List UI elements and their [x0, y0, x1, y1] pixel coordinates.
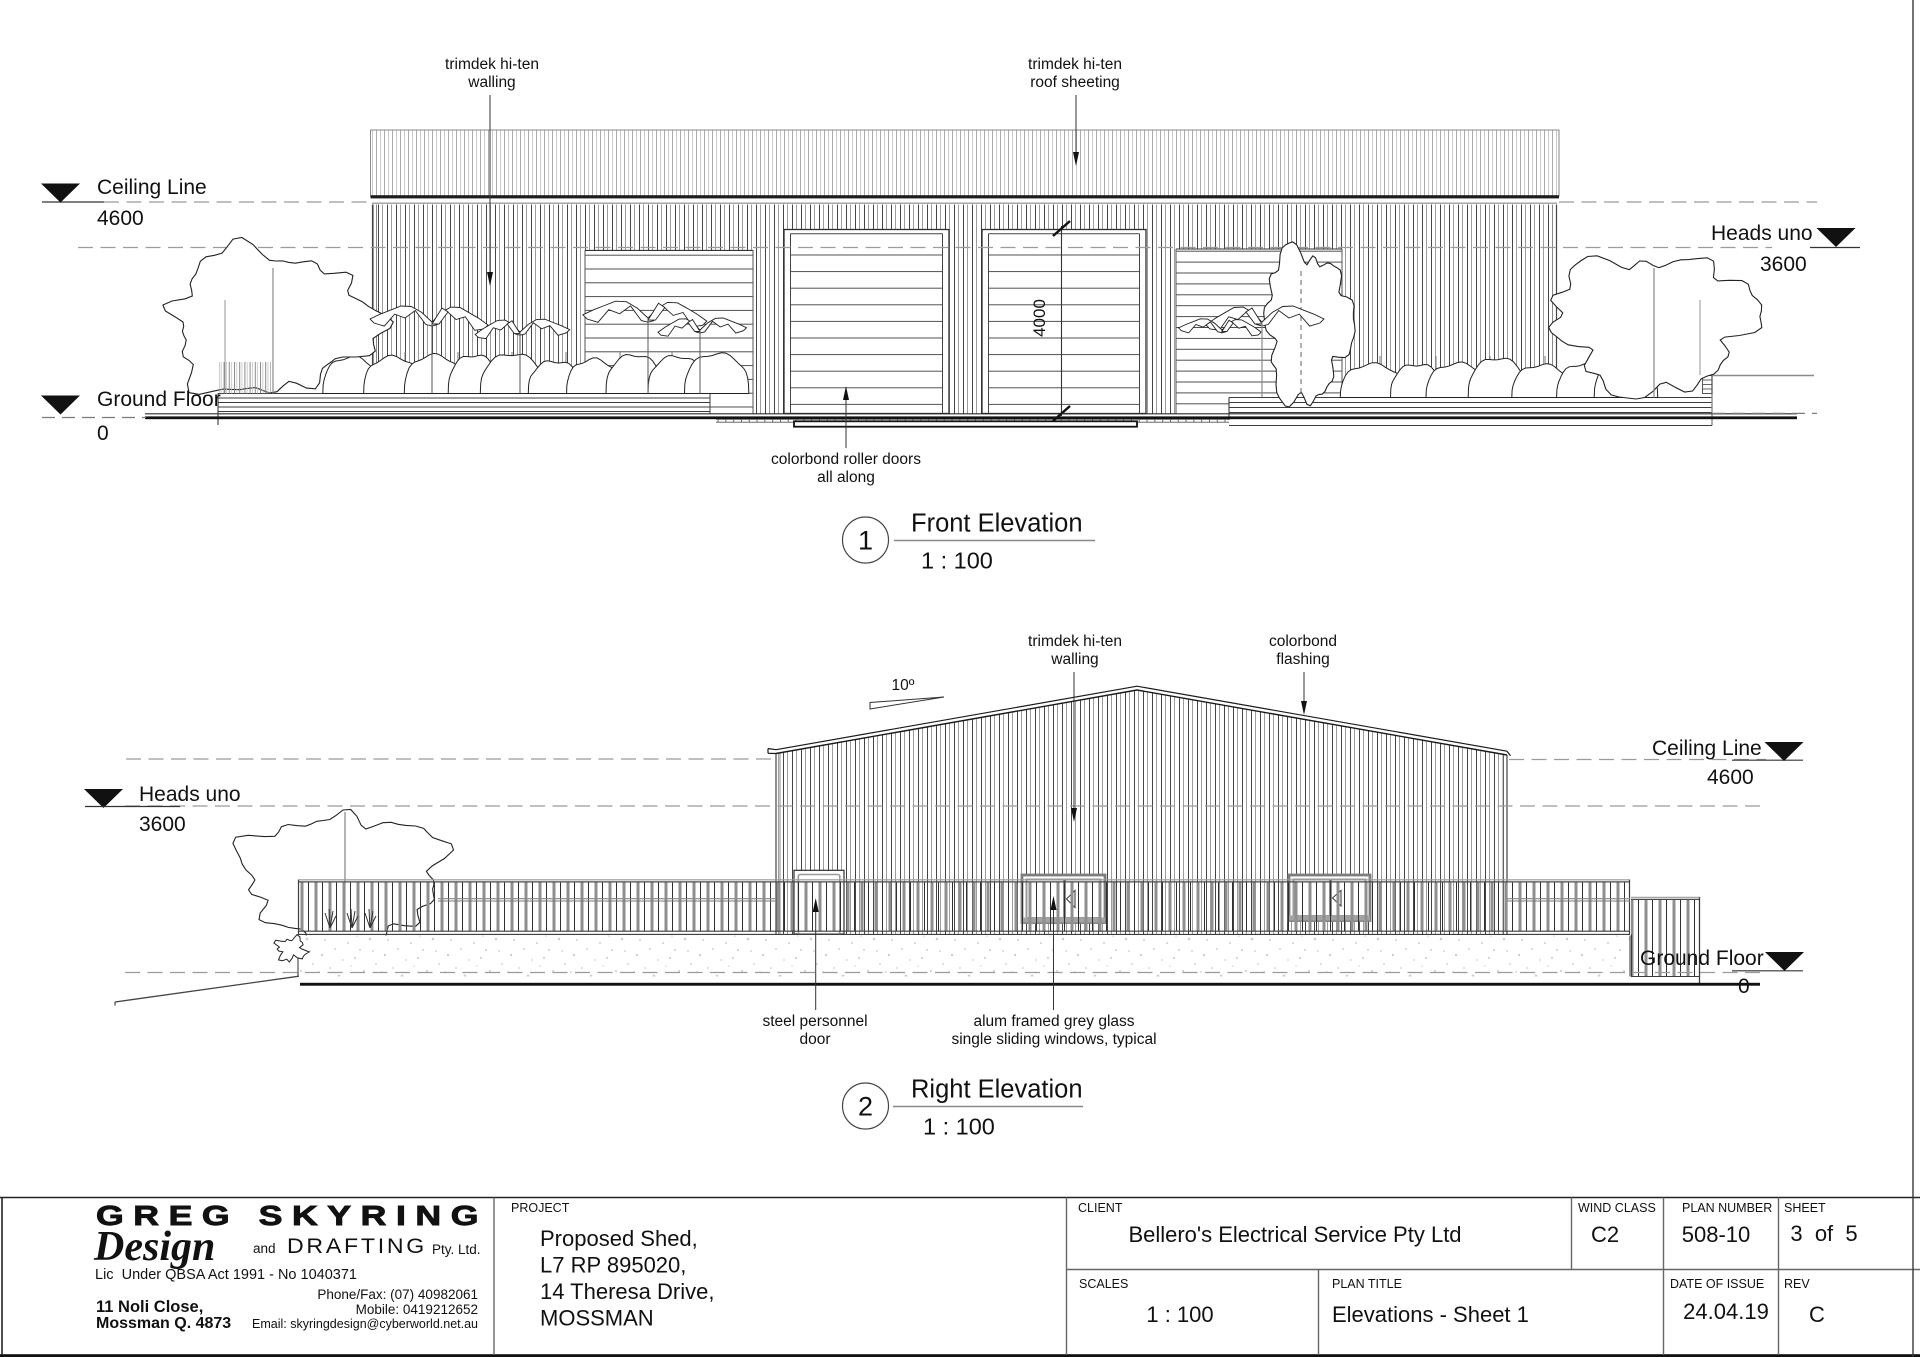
- svg-text:10º: 10º: [892, 677, 915, 694]
- svg-text:Bellero's Electrical Service P: Bellero's Electrical Service Pty Ltd: [1128, 1222, 1461, 1247]
- svg-text:Email: skyringdesign@cyberworl: Email: skyringdesign@cyberworld.net.au: [252, 1317, 478, 1331]
- svg-text:11 Noli Close,: 11 Noli Close,: [96, 1298, 203, 1316]
- svg-text:trimdek hi-ten: trimdek hi-ten: [1028, 633, 1122, 650]
- svg-text:1: 1: [858, 526, 873, 556]
- svg-text:Ground Floor: Ground Floor: [1640, 947, 1764, 970]
- svg-text:Elevations - Sheet 1: Elevations - Sheet 1: [1332, 1302, 1529, 1327]
- svg-text:trimdek hi-ten: trimdek hi-ten: [1028, 56, 1122, 73]
- svg-text:24.04.19: 24.04.19: [1683, 1299, 1769, 1324]
- svg-text:and: and: [253, 1241, 276, 1256]
- svg-text:SHEET: SHEET: [1784, 1201, 1826, 1215]
- svg-text:2: 2: [858, 1092, 873, 1122]
- svg-text:single sliding windows, typica: single sliding windows, typical: [951, 1031, 1156, 1048]
- svg-text:Heads uno: Heads uno: [1711, 222, 1813, 245]
- svg-text:WIND CLASS: WIND CLASS: [1578, 1201, 1656, 1215]
- svg-text:C2: C2: [1591, 1222, 1619, 1247]
- svg-text:4000: 4000: [1030, 299, 1049, 337]
- svg-text:3600: 3600: [139, 813, 186, 836]
- svg-text:Ground Floor: Ground Floor: [97, 388, 221, 411]
- svg-text:3 of 5: 3 of 5: [1790, 1221, 1857, 1246]
- svg-text:trimdek hi-ten: trimdek hi-ten: [445, 56, 539, 73]
- svg-text:1 : 100: 1 : 100: [923, 1114, 995, 1140]
- svg-text:1 : 100: 1 : 100: [1146, 1302, 1213, 1327]
- svg-text:Right Elevation: Right Elevation: [911, 1076, 1083, 1104]
- svg-text:0: 0: [1738, 975, 1750, 998]
- svg-text:L7 RP 895020,: L7 RP 895020,: [540, 1253, 686, 1278]
- svg-text:Pty. Ltd.: Pty. Ltd.: [432, 1242, 481, 1257]
- svg-text:Ceiling Line: Ceiling Line: [1652, 737, 1762, 760]
- svg-text:colorbond: colorbond: [1269, 633, 1337, 650]
- svg-text:508-10: 508-10: [1682, 1222, 1751, 1247]
- svg-text:Ceiling Line: Ceiling Line: [97, 176, 207, 199]
- svg-text:DRAFTING: DRAFTING: [287, 1235, 427, 1258]
- svg-text:1 : 100: 1 : 100: [921, 548, 993, 574]
- svg-text:Front Elevation: Front Elevation: [911, 510, 1083, 538]
- svg-text:alum framed grey glass: alum framed grey glass: [973, 1013, 1134, 1030]
- svg-text:PLAN TITLE: PLAN TITLE: [1332, 1277, 1402, 1291]
- svg-text:colorbond roller doors: colorbond roller doors: [771, 451, 921, 468]
- svg-text:flashing: flashing: [1276, 651, 1329, 668]
- svg-text:walling: walling: [467, 74, 515, 91]
- svg-text:4600: 4600: [1707, 766, 1754, 789]
- svg-text:PLAN NUMBER: PLAN NUMBER: [1682, 1201, 1772, 1215]
- svg-text:Heads uno: Heads uno: [139, 783, 241, 806]
- svg-text:Design: Design: [93, 1224, 215, 1270]
- svg-text:Lic Under QBSA Act 1991 - No: Lic Under QBSA Act 1991 - No 1040371: [95, 1267, 357, 1283]
- svg-text:SCALES: SCALES: [1079, 1277, 1128, 1291]
- svg-text:roof sheeting: roof sheeting: [1030, 74, 1120, 91]
- svg-text:Proposed Shed,: Proposed Shed,: [540, 1226, 698, 1251]
- svg-text:0: 0: [97, 422, 109, 445]
- svg-text:all along: all along: [817, 469, 875, 486]
- svg-text:door: door: [799, 1031, 830, 1048]
- svg-text:3600: 3600: [1760, 253, 1807, 276]
- svg-text:steel personnel: steel personnel: [762, 1013, 867, 1030]
- svg-text:14 Theresa Drive,: 14 Theresa Drive,: [540, 1279, 714, 1304]
- svg-text:MOSSMAN: MOSSMAN: [540, 1306, 654, 1331]
- svg-text:C: C: [1809, 1302, 1825, 1327]
- svg-text:walling: walling: [1050, 651, 1098, 668]
- svg-text:Mobile: 0419212652: Mobile: 0419212652: [356, 1302, 478, 1317]
- svg-text:REV: REV: [1784, 1277, 1810, 1291]
- svg-text:4600: 4600: [97, 207, 144, 230]
- svg-text:Phone/Fax: (07) 40982061: Phone/Fax: (07) 40982061: [317, 1287, 478, 1302]
- svg-text:CLIENT: CLIENT: [1078, 1201, 1123, 1215]
- svg-text:DATE OF ISSUE: DATE OF ISSUE: [1670, 1277, 1764, 1291]
- svg-text:Mossman Q. 4873: Mossman Q. 4873: [96, 1315, 231, 1332]
- svg-text:PROJECT: PROJECT: [511, 1201, 570, 1215]
